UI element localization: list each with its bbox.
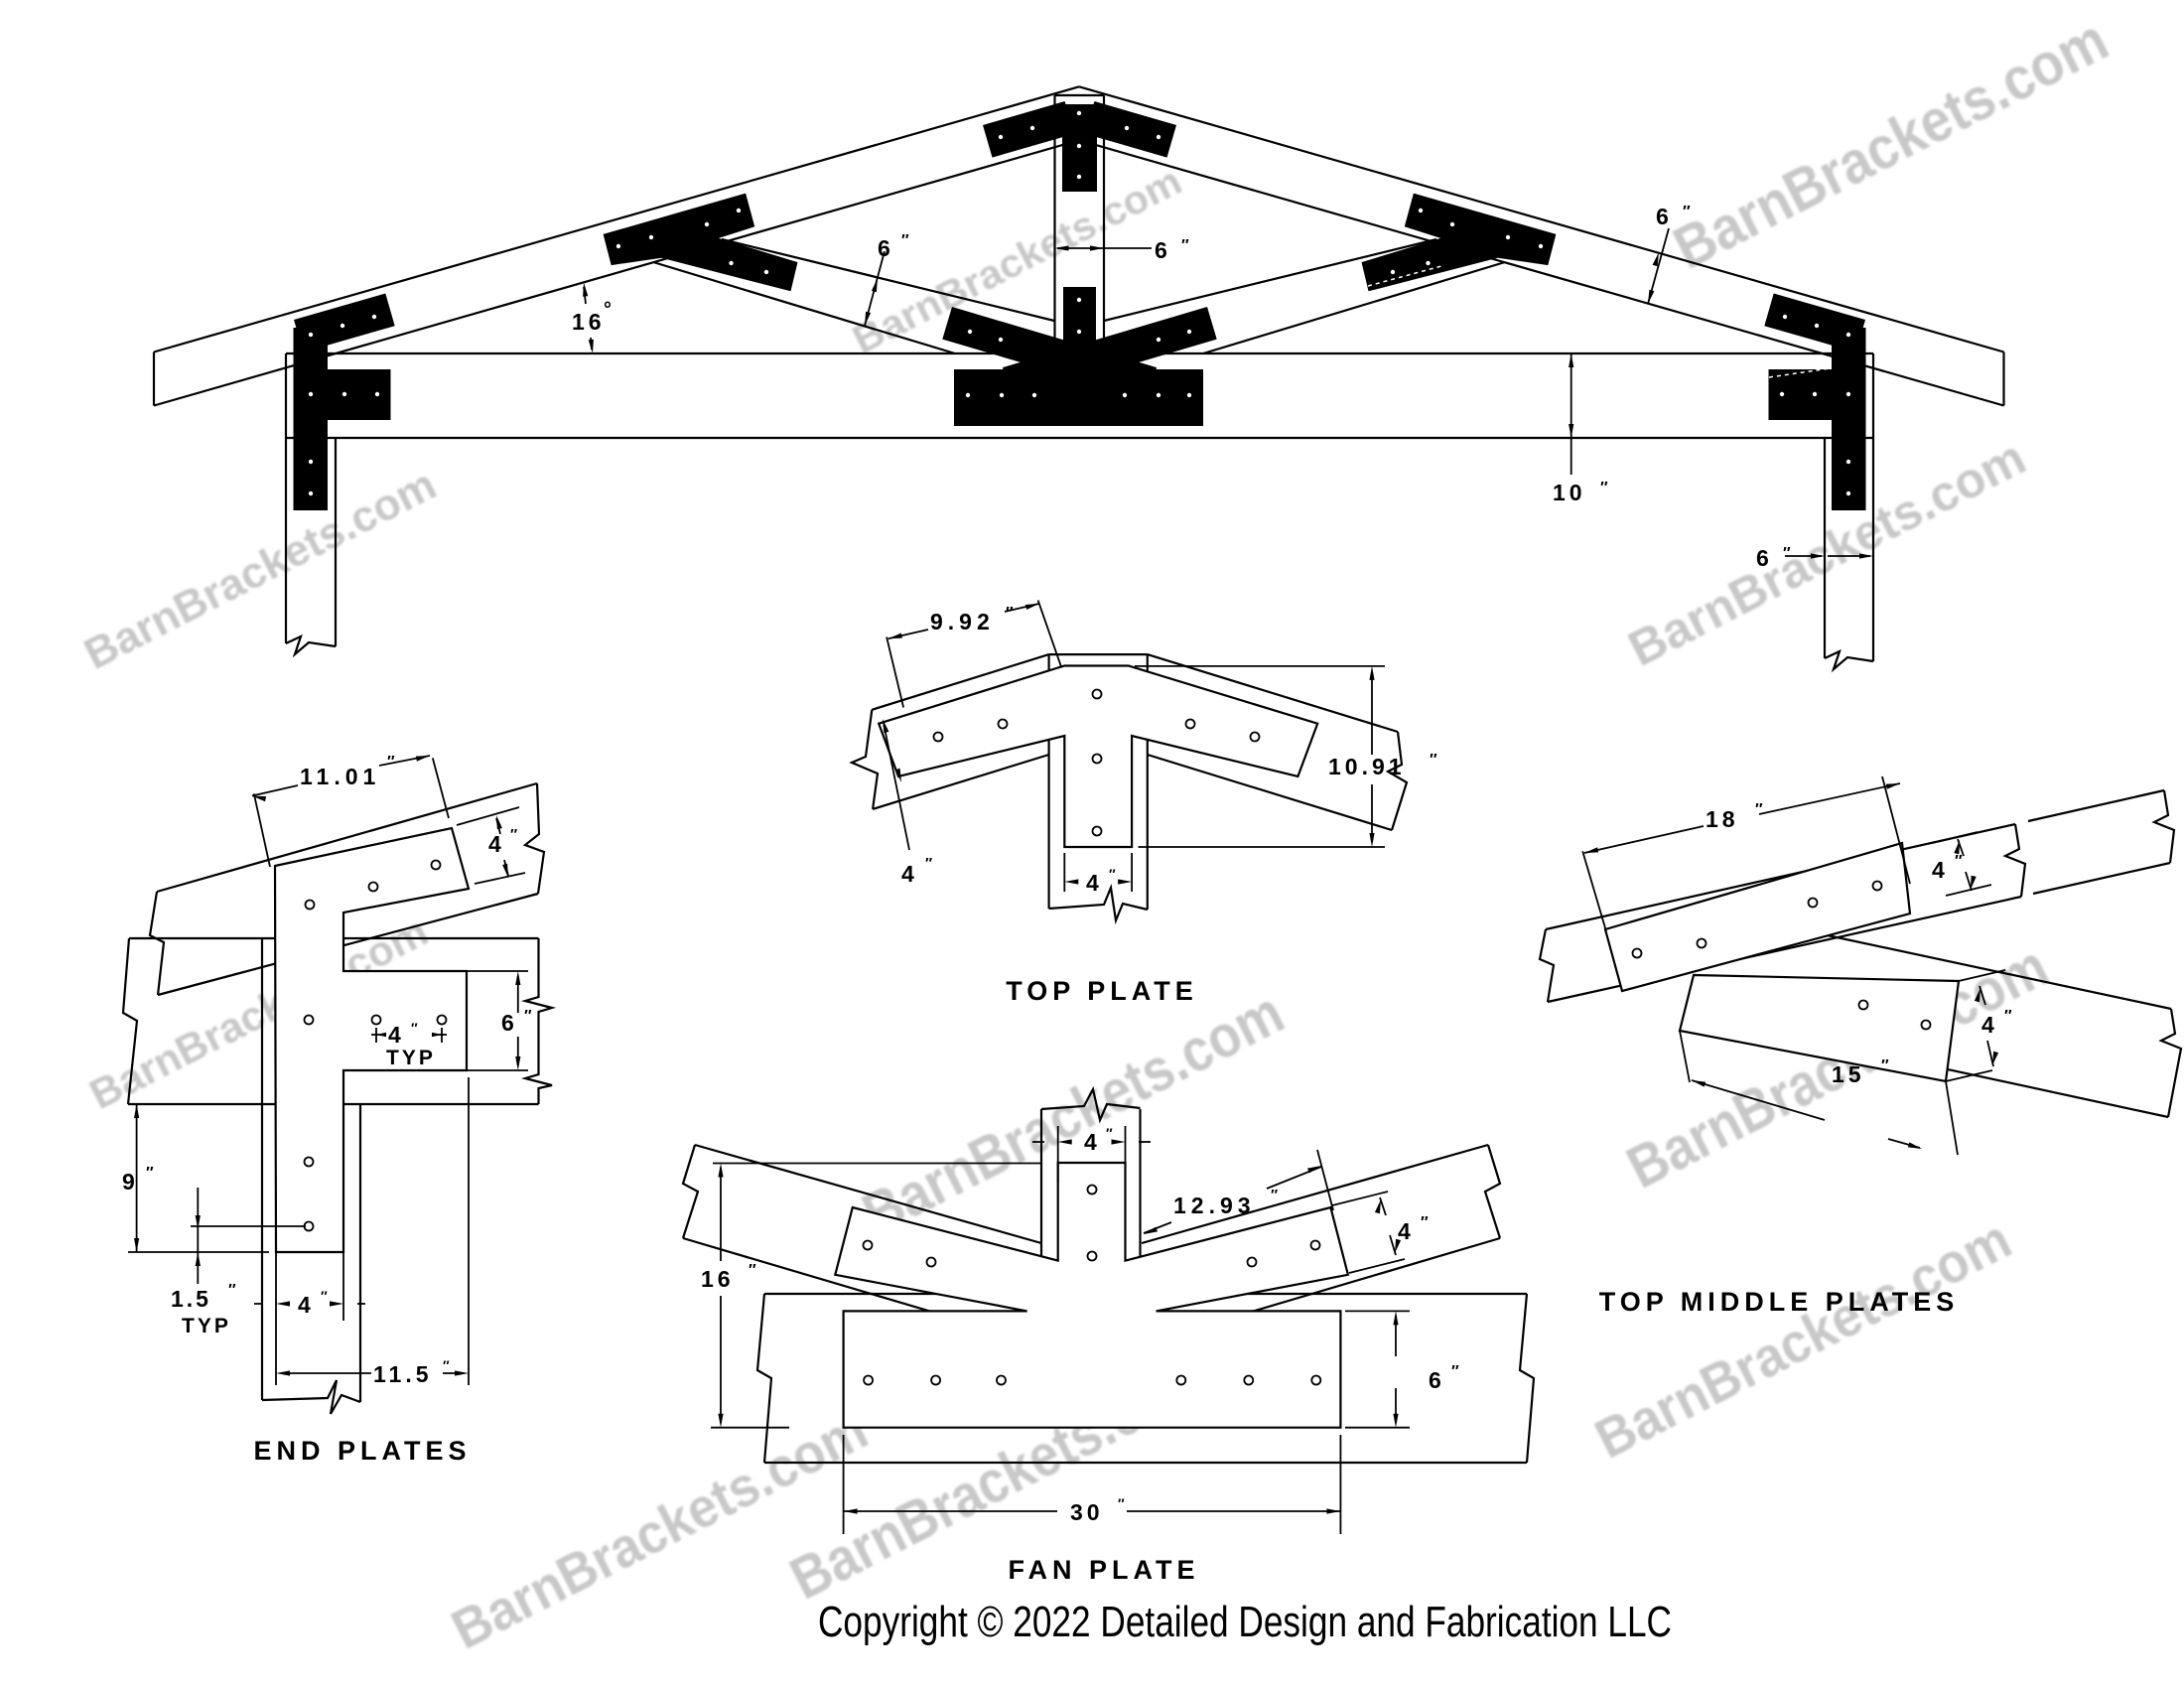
svg-text:″: ″ — [1955, 853, 1963, 870]
svg-text:″: ″ — [1271, 1187, 1278, 1203]
svg-text:10.91: 10.91 — [1328, 754, 1406, 779]
svg-text:4: 4 — [298, 1292, 313, 1318]
svg-text:″: ″ — [901, 232, 909, 249]
svg-text:FAN PLATE: FAN PLATE — [1009, 1555, 1200, 1585]
svg-text:12.93: 12.93 — [1173, 1193, 1256, 1218]
svg-text:4: 4 — [1398, 1218, 1413, 1244]
svg-text:″: ″ — [524, 1008, 532, 1025]
svg-text:″: ″ — [1118, 1495, 1125, 1511]
svg-text:TYP: TYP — [386, 1047, 436, 1069]
svg-text:1.5: 1.5 — [171, 1286, 211, 1312]
svg-text:TOP MIDDLE PLATES: TOP MIDDLE PLATES — [1599, 1287, 1960, 1317]
svg-text:30: 30 — [1070, 1499, 1104, 1525]
svg-text:″: ″ — [321, 1288, 328, 1304]
svg-text:″: ″ — [749, 1262, 756, 1279]
svg-text:″: ″ — [1421, 1214, 1429, 1231]
svg-text:4: 4 — [488, 831, 503, 857]
svg-text:″: ″ — [387, 754, 395, 771]
svg-text:″: ″ — [925, 855, 932, 872]
svg-text:″: ″ — [2004, 1008, 2012, 1025]
svg-text:11.5: 11.5 — [373, 1361, 433, 1387]
svg-text:″: ″ — [1006, 605, 1014, 622]
svg-text:″: ″ — [1783, 545, 1791, 562]
svg-text:″: ″ — [1881, 1057, 1889, 1074]
svg-text:9: 9 — [122, 1169, 137, 1195]
svg-text:4: 4 — [901, 861, 916, 887]
svg-text:″: ″ — [1181, 237, 1189, 254]
svg-text:6: 6 — [1155, 237, 1169, 263]
svg-text:11.01: 11.01 — [300, 764, 380, 789]
svg-text:6: 6 — [501, 1010, 516, 1036]
svg-text:″: ″ — [510, 826, 517, 843]
svg-text:″: ″ — [443, 1357, 450, 1373]
svg-text:6: 6 — [1756, 545, 1771, 571]
svg-text:15: 15 — [1832, 1061, 1865, 1087]
svg-text:6: 6 — [1429, 1367, 1443, 1393]
svg-text:4: 4 — [1981, 1012, 1996, 1038]
svg-text:TYP: TYP — [182, 1315, 231, 1337]
svg-text:18: 18 — [1706, 806, 1739, 832]
svg-text:″: ″ — [146, 1165, 154, 1182]
svg-text:4: 4 — [1084, 1129, 1099, 1155]
svg-text:″: ″ — [1106, 1125, 1113, 1141]
svg-text:″: ″ — [228, 1282, 236, 1299]
svg-text:TOP PLATE: TOP PLATE — [1006, 976, 1198, 1006]
svg-text:″: ″ — [1109, 866, 1116, 882]
svg-text:Copyright © 2022 Detailed Desi: Copyright © 2022 Detailed Design and Fab… — [818, 1598, 1672, 1646]
svg-text:″: ″ — [1683, 204, 1691, 220]
svg-text:6: 6 — [878, 235, 892, 261]
svg-text:°: ° — [604, 299, 612, 321]
svg-text:″: ″ — [1600, 480, 1608, 496]
svg-text:16: 16 — [572, 309, 606, 335]
svg-text:10: 10 — [1553, 480, 1586, 505]
svg-text:″: ″ — [1451, 1363, 1459, 1380]
svg-text:4: 4 — [1932, 857, 1947, 883]
svg-text:″: ″ — [1755, 801, 1763, 818]
svg-text:″: ″ — [411, 1020, 418, 1036]
svg-text:6: 6 — [1656, 204, 1671, 229]
svg-text:16: 16 — [701, 1266, 735, 1292]
svg-text:END PLATES: END PLATES — [253, 1436, 471, 1466]
svg-text:4: 4 — [1086, 870, 1101, 896]
svg-text:9.92: 9.92 — [930, 609, 995, 634]
svg-text:″: ″ — [1430, 752, 1437, 769]
svg-text:4: 4 — [388, 1022, 403, 1048]
